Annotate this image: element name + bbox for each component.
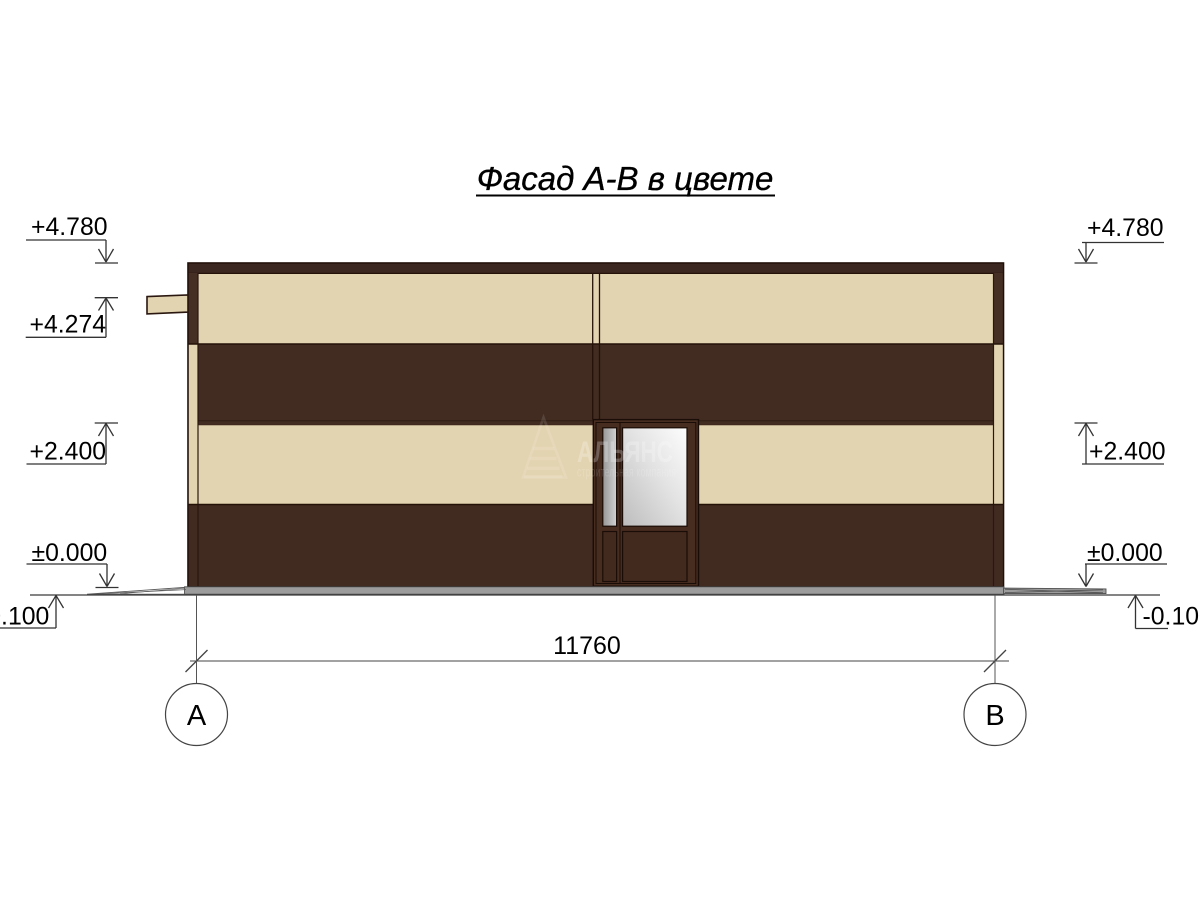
svg-text:+4.274: +4.274 xyxy=(30,312,107,339)
svg-text:+4.780: +4.780 xyxy=(31,214,108,241)
svg-text:+2.400: +2.400 xyxy=(1089,439,1166,466)
svg-text:+4.780: +4.780 xyxy=(1087,215,1164,242)
svg-text:11760: 11760 xyxy=(553,632,621,660)
svg-text:строительная компания: строительная компания xyxy=(577,466,676,481)
svg-text:А: А xyxy=(187,700,207,732)
svg-text:±0.000: ±0.000 xyxy=(32,540,108,567)
svg-text:+2.400: +2.400 xyxy=(30,439,107,466)
svg-text:Фасад А-В в цвете: Фасад А-В в цвете xyxy=(477,160,774,197)
svg-text:В: В xyxy=(985,700,1004,732)
svg-text:-0.100: -0.100 xyxy=(1143,604,1200,631)
svg-text:±0.000: ±0.000 xyxy=(1087,540,1163,567)
svg-text:АЛЬЯНС: АЛЬЯНС xyxy=(577,435,673,469)
svg-text:-0.100: -0.100 xyxy=(0,604,49,631)
